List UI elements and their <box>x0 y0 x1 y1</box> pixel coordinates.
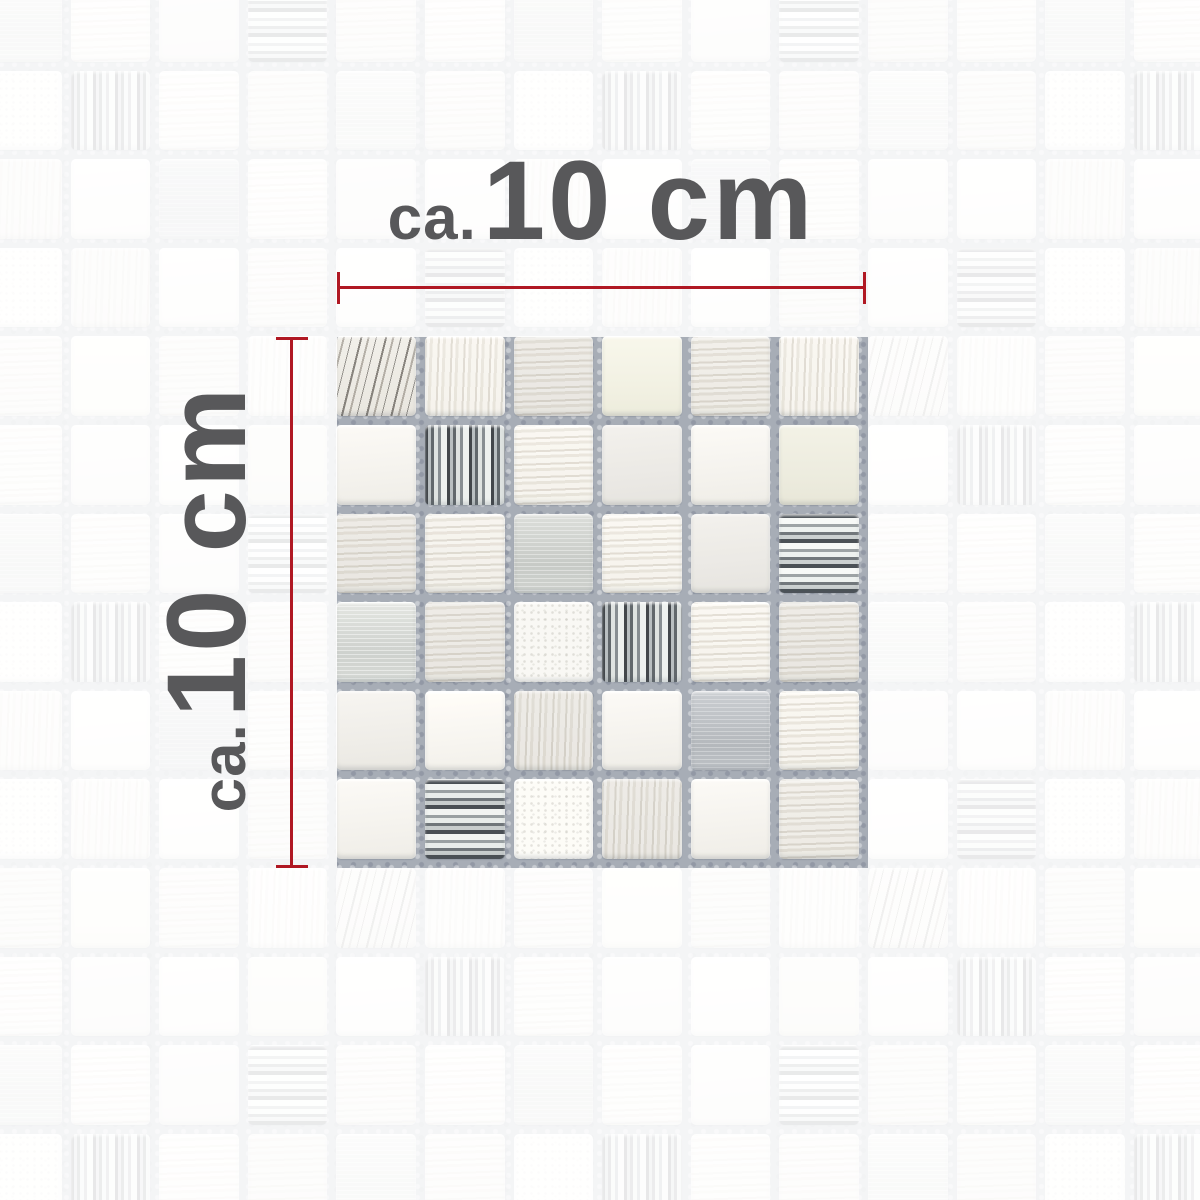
dimension-value-horizontal: 10 cm <box>483 136 816 265</box>
dimension-tick-bottom <box>276 865 308 868</box>
mosaic-tile <box>779 602 859 682</box>
mosaic-tile <box>779 514 859 594</box>
mosaic-tile <box>691 691 771 771</box>
mosaic-tile <box>691 336 771 416</box>
mosaic-tile <box>779 336 859 416</box>
dimension-prefix-vertical: ca. <box>189 723 260 812</box>
fade-overlay-right <box>868 337 1200 868</box>
mosaic-tile <box>425 425 505 505</box>
mosaic-tile <box>336 514 416 594</box>
mosaic-tile <box>336 336 416 416</box>
mosaic-tile <box>691 779 771 859</box>
mosaic-tile <box>514 602 594 682</box>
mosaic-tile <box>691 514 771 594</box>
mosaic-tile <box>779 425 859 505</box>
dimension-tick-right <box>863 272 866 304</box>
mosaic-tile <box>425 602 505 682</box>
mosaic-tile <box>602 779 682 859</box>
mosaic-tile <box>514 336 594 416</box>
mosaic-tile <box>602 425 682 505</box>
mosaic-tile <box>514 425 594 505</box>
mosaic-tile <box>602 336 682 416</box>
mosaic-tile <box>514 514 594 594</box>
mosaic-tile <box>602 514 682 594</box>
product-image: ca. 10 cm ca. 10 cm <box>0 0 1200 1200</box>
dimension-line-vertical <box>290 337 293 868</box>
dimension-tick-top <box>276 337 308 340</box>
mosaic-tile <box>514 691 594 771</box>
mosaic-tile <box>602 691 682 771</box>
dimension-label-vertical: ca. 10 cm <box>142 334 271 863</box>
mosaic-tile <box>779 691 859 771</box>
fade-overlay-bottom <box>0 868 1200 1200</box>
dimension-tick-left <box>337 272 340 304</box>
mosaic-tile <box>336 602 416 682</box>
mosaic-tile <box>514 779 594 859</box>
dimension-label-horizontal: ca. 10 cm <box>337 136 866 265</box>
mosaic-tile <box>779 779 859 859</box>
dimension-prefix-horizontal: ca. <box>388 183 477 254</box>
mosaic-tile <box>425 514 505 594</box>
mosaic-tile <box>425 336 505 416</box>
mosaic-tile <box>691 425 771 505</box>
dimension-value-vertical: 10 cm <box>142 385 271 718</box>
mosaic-tile <box>602 602 682 682</box>
mosaic-tile <box>336 779 416 859</box>
mosaic-tile <box>336 425 416 505</box>
mosaic-tile <box>691 602 771 682</box>
dimension-line-horizontal <box>337 286 866 289</box>
mosaic-tile <box>425 691 505 771</box>
mosaic-tile <box>425 779 505 859</box>
mosaic-tile <box>336 691 416 771</box>
